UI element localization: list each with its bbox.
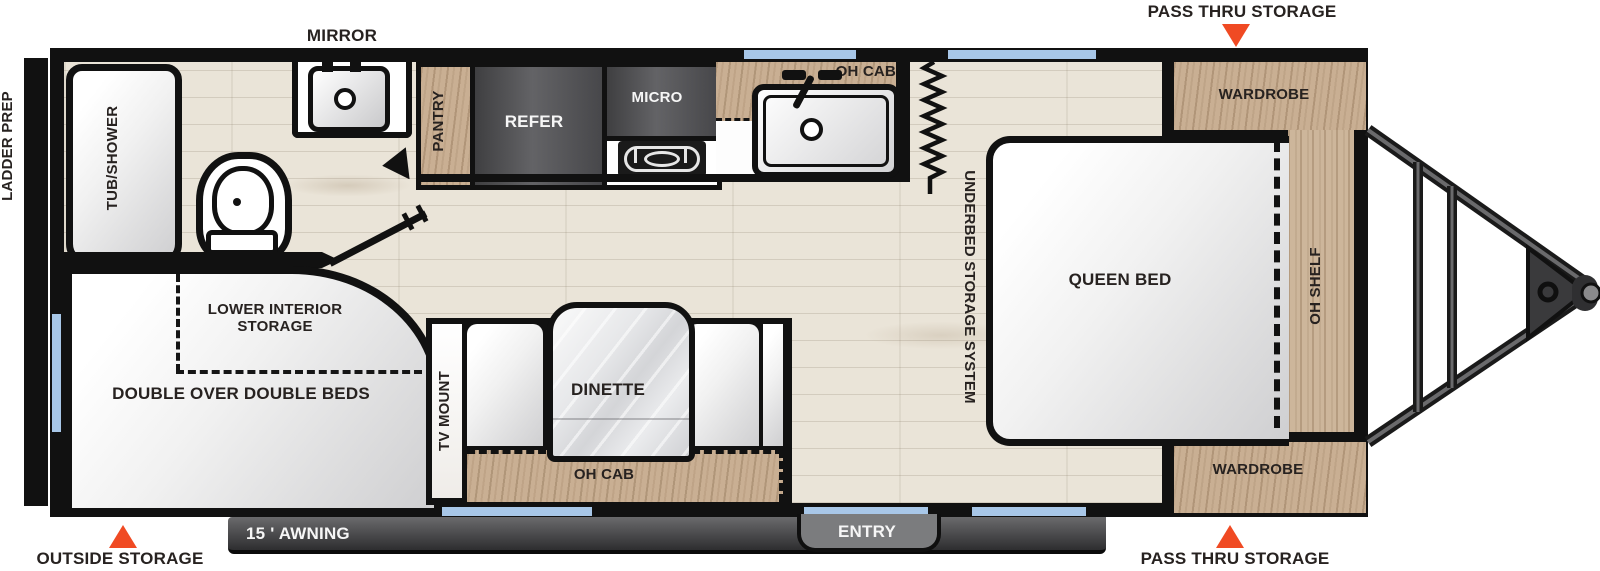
rear-bumper xyxy=(24,58,48,506)
pantry-label: PANTRY xyxy=(431,66,451,176)
toilet-seat xyxy=(212,166,274,236)
pass-thru-storage-top-arrow xyxy=(1222,24,1250,47)
microwave-label: MICRO xyxy=(604,90,710,107)
cooktop-grate-right xyxy=(684,149,687,163)
outside-storage-label: OUTSIDE STORAGE xyxy=(10,549,230,568)
queen-bed-label: QUEEN BED xyxy=(1040,270,1200,289)
cooktop-burner-ring xyxy=(644,151,680,167)
mirror-label: MIRROR xyxy=(282,26,402,45)
queen-bed-foot-dashed-edge xyxy=(1274,140,1280,428)
outside-storage-arrow xyxy=(109,525,137,548)
wardrobe-roadside-label: WARDROBE xyxy=(1184,87,1344,104)
wardrobe-doorside-label: WARDROBE xyxy=(1178,462,1338,479)
awning-bar xyxy=(228,517,1106,554)
bath-sink-drain xyxy=(334,88,356,110)
cooktop-grate-left xyxy=(634,149,637,163)
window-top-kitchen xyxy=(744,50,856,59)
entry-label: ENTRY xyxy=(799,522,935,541)
window-bottom-entry-right xyxy=(972,507,1086,516)
bath-faucet-handle-left xyxy=(322,62,333,72)
dinette-table-seam xyxy=(553,418,689,420)
refrigerator-label: REFER xyxy=(474,112,594,131)
counter-zigzag xyxy=(914,58,948,198)
tv-mount-label: TV MOUNT xyxy=(437,331,457,491)
kitchen-sink-drain xyxy=(800,118,823,141)
kitchen-faucet-left xyxy=(782,70,806,80)
double-over-double-beds-label: DOUBLE OVER DOUBLE BEDS xyxy=(66,384,416,403)
tub-shower-label: TUB/SHOWER xyxy=(105,63,127,253)
pass-thru-storage-top-label: PASS THRU STORAGE xyxy=(1122,2,1362,21)
lower-interior-storage-label: LOWER INTERIOR STORAGE xyxy=(180,302,370,336)
dinette-oh-cab-label: OH CAB xyxy=(524,467,684,484)
kitchen-faucet-right xyxy=(818,70,842,80)
underbed-storage-label: UNDERBED STORAGE SYSTEM xyxy=(957,147,977,427)
trailer-tongue xyxy=(1360,100,1600,460)
ladder-prep-label: LADDER PREP xyxy=(0,56,22,236)
pass-thru-storage-bottom-label: PASS THRU STORAGE xyxy=(1115,549,1355,568)
window-top-bedroom xyxy=(948,50,1096,59)
dinette-end-panel xyxy=(763,324,783,446)
awning-label: 15 ' AWNING xyxy=(246,524,350,543)
window-left-bunk xyxy=(52,314,61,432)
bath-faucet-handle-right xyxy=(350,62,361,72)
window-bottom-dinette xyxy=(416,507,592,516)
oh-shelf-label: OH SHELF xyxy=(1308,226,1328,346)
dinette-bench-right xyxy=(687,324,759,446)
toilet-drain-dot xyxy=(233,198,241,206)
kitchen-sink xyxy=(752,84,900,178)
pass-thru-storage-bottom-arrow xyxy=(1216,525,1244,548)
dinette-label: DINETTE xyxy=(528,380,688,399)
cooktop-icon xyxy=(618,141,706,177)
floorplan-canvas: LADDER PREP TUB/SHOWER MIRROR PANTRY REF… xyxy=(0,0,1600,571)
queen-bed xyxy=(986,136,1289,446)
kitchen-sink-inner xyxy=(763,95,889,167)
lower-storage-dashed-h xyxy=(176,370,422,374)
